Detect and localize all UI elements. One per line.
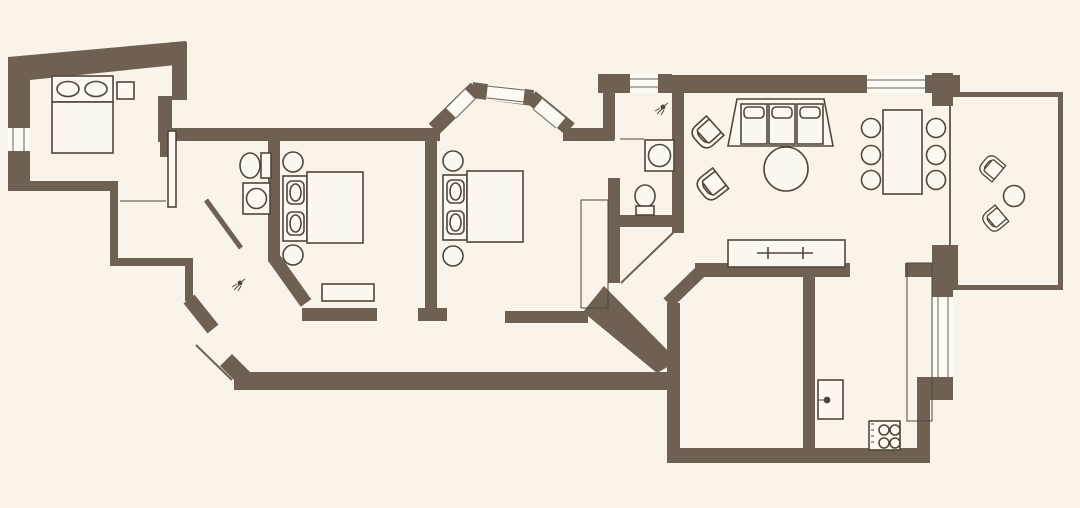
wall-kitchen-west-closure [667,390,680,448]
wall-right-upper-block [932,73,953,106]
wall-top-bedrooms [158,128,440,141]
bedroom-1-furniture [52,76,134,153]
interior-walls [160,92,933,463]
wall-bedroom3-bottom [505,311,588,323]
balcony-wall-return [953,245,958,290]
wall-step-2 [110,258,193,266]
stool [443,246,463,266]
living-room-door-leaf [621,229,677,283]
living-dining-furniture [689,99,946,267]
wall-kitchen-right-low [917,400,930,448]
sofa-seat [741,104,767,144]
wall-kitchen-right-mid [917,377,953,400]
living-room-top-window [867,75,925,93]
wall-left-lower [8,151,30,183]
wall-step-1 [110,191,118,266]
wall-bottom-long [234,372,680,390]
bench-rug [322,284,374,301]
wall-bedroom1-bottom [8,181,118,191]
shower-head-icon [232,279,245,291]
double-bed [52,102,113,153]
balcony-wall-bottom [953,285,1063,290]
coffee-table-round [764,147,808,191]
wall-bathroom2-bottom [618,215,677,227]
wall-top-bathroom2-right [658,74,672,93]
double-bed [307,172,363,243]
wall-bedroom2-bottom [302,308,377,321]
dining-table [883,110,922,194]
dining-chair [927,171,946,190]
armchair [694,168,729,203]
shower1-partition [206,200,241,248]
toilet-tank [636,206,654,215]
wall-step-3 [185,266,193,301]
wall-passthrough-right [905,263,933,277]
balcony-furniture [977,153,1025,234]
sofa-seat [769,104,795,144]
toilet-bowl [635,185,655,207]
wall-kitchen-west [803,268,815,463]
bedroom-3-furniture [443,151,608,308]
wall-top-living [672,75,867,93]
faucet [824,397,831,404]
balcony-chair [980,205,1009,234]
stool [283,152,303,172]
wall-bathroom2-west-lower [608,178,620,283]
wall-entry-diagonal-upper [189,299,213,329]
double-bed [467,171,523,242]
wall-corridor-diagonal [583,286,678,373]
bathroom-1-furniture [232,153,271,291]
stool [283,245,303,265]
balcony-chair [977,153,1006,182]
wall-left-upper [8,57,30,128]
kitchen-east-window [933,297,953,377]
dining-chair [862,119,881,138]
kitchen-furniture [818,263,932,450]
bedroom1-window [8,128,30,151]
stool [443,151,463,171]
balcony-wall-top [953,92,1063,97]
wall-kitchen-strip [667,303,680,393]
toilet-tank [261,153,271,178]
bathroom-2-furniture [620,103,674,215]
dining-chair [927,146,946,165]
armchair [689,116,724,151]
wall-top-bathroom2-left [598,74,630,93]
bathroom1-door-leaf [168,131,176,207]
wall-top-left-slanted [8,41,186,80]
nightstand [117,82,134,99]
bed-headboard [52,76,113,102]
floor-plan [0,0,1080,508]
wall-right-lower-block [932,245,953,297]
wall-kitchen-diagonal-cap [668,272,700,303]
bay-window-top-pane [487,86,524,102]
shower-head-icon [655,103,668,115]
wall-bathroom2-west-upper [603,92,615,140]
balcony-wall-right [1058,92,1063,290]
dining-chair [862,146,881,165]
dining-chair [927,119,946,138]
wall-bedroom2-3-divider [425,141,437,315]
bathroom2-window [630,74,658,93]
dining-chair [862,171,881,190]
wall-top-step-a [172,42,187,100]
balcony-table-round [1004,186,1025,207]
sofa-seat [797,104,823,144]
toilet-bowl [240,153,260,178]
